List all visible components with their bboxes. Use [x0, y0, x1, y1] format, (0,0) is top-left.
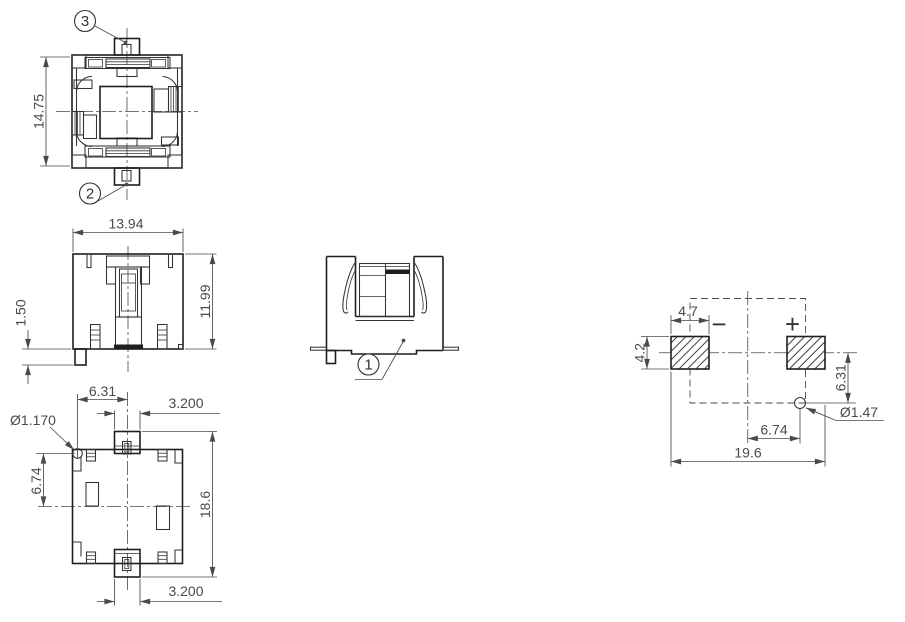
dim-label-4-2: 4.2: [632, 343, 648, 363]
dim-hole-diameter: Ø1.170: [10, 412, 74, 450]
dim-label-13-94: 13.94: [108, 216, 143, 232]
dim-label-3-200-bottom: 3.200: [168, 583, 203, 599]
solder-pad-positive: [787, 337, 825, 370]
dim-hole-offset-x: 6.31: [78, 383, 128, 459]
dim-label-19-6: 19.6: [734, 445, 761, 461]
balloon-2-label: 2: [86, 186, 94, 203]
dim-label-6-74: 6.74: [28, 467, 44, 494]
dim-label-6-74: 6.74: [760, 422, 787, 438]
dim-hole-diameter: Ø1.47: [806, 404, 884, 421]
top-view: 14.75 3 2: [31, 11, 199, 205]
dim-label-1-50: 1.50: [13, 299, 29, 326]
solder-pad-negative: [671, 337, 709, 370]
leader-dot: [402, 339, 406, 343]
dim-top-tab-width: 3.200: [97, 395, 220, 430]
balloon-3-label: 3: [81, 13, 89, 30]
dim-hole-offset-x: 6.74: [748, 409, 800, 444]
dim-label-dia-1-170: Ø1.170: [10, 412, 56, 428]
dim-label-11-99: 11.99: [197, 284, 213, 318]
dim-label-18-6: 18.6: [197, 491, 213, 518]
dim-label-dia-1-47: Ø1.47: [840, 404, 878, 420]
leader-dot: [124, 41, 128, 45]
balloon-1-label: 1: [364, 357, 372, 374]
technical-drawing-battery-holder: 14.75 3 2: [0, 0, 905, 622]
dim-label-6-31: 6.31: [89, 383, 116, 399]
dim-label-3-200-top: 3.200: [168, 395, 203, 411]
polarity-positive-label: +: [785, 309, 800, 339]
dim-label-4-7: 4.7: [678, 303, 698, 319]
balloon-2: 2: [80, 183, 129, 204]
dim-overall-height: 18.6: [142, 432, 217, 578]
dim-label-14-75: 14.75: [31, 94, 47, 129]
bottom-view: 6.31 3.200 Ø1.170 6.74 18.6: [10, 383, 222, 606]
dim-bottom-tab-width: 3.200: [97, 579, 222, 606]
dim-label-6-31: 6.31: [833, 364, 849, 391]
front-view: 13.94 11.99 1.50: [13, 216, 217, 385]
balloon-1: 1: [355, 339, 405, 380]
balloon-3: 3: [75, 11, 128, 45]
land-pattern-view: − + 4.7 4.2 6.31 Ø1.47 6.74: [632, 291, 885, 467]
polarity-negative-label: −: [711, 309, 726, 339]
dim-hole-offset-y: 6.74: [28, 454, 75, 507]
leader-dot: [125, 183, 129, 187]
side-view: 1: [311, 257, 459, 380]
dim-front-height: 11.99: [185, 254, 217, 349]
dim-leg-height: 1.50: [13, 299, 74, 384]
part-outline: [311, 257, 459, 364]
